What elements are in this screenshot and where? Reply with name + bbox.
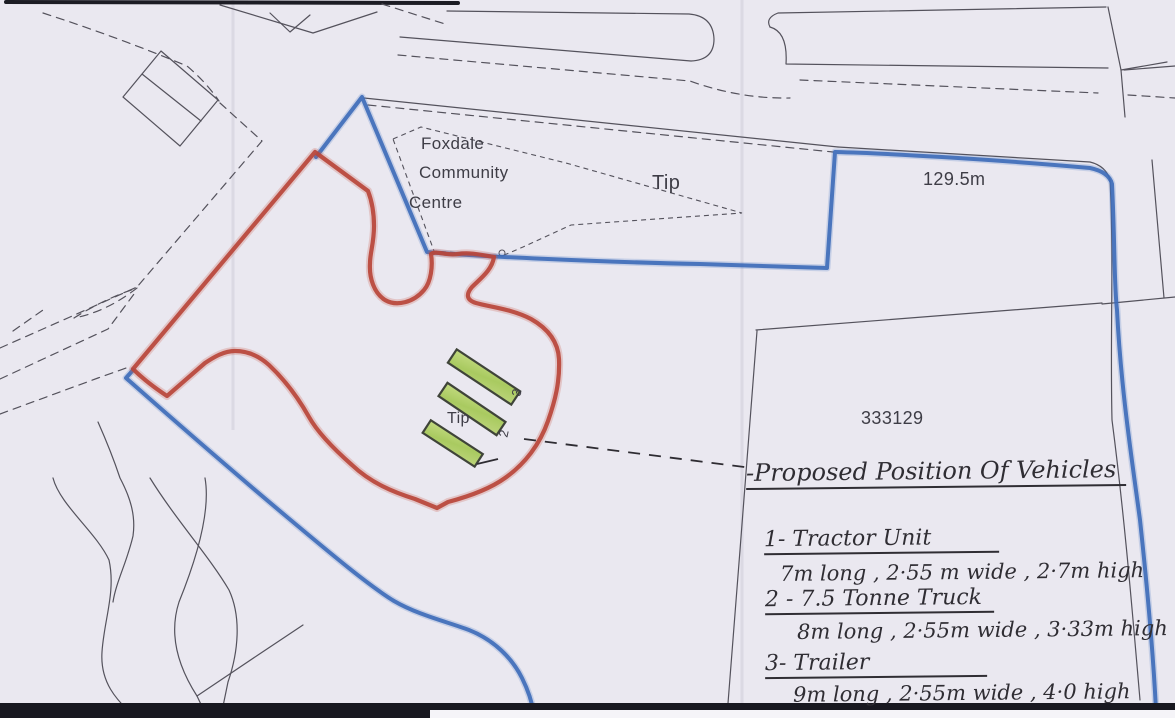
- field-boundary-curve: [197, 625, 303, 696]
- road-dashed: [382, 4, 445, 24]
- road-dashed: [1128, 95, 1175, 98]
- track-outline: [400, 11, 714, 61]
- road-fork-inner-v: [270, 13, 310, 32]
- scanned-site-plan: Foxdale Community Centre Tip 129.5m 3331…: [0, 0, 1175, 718]
- label-tip-site: Tip: [447, 410, 470, 428]
- field-boundary-curve: [175, 478, 207, 717]
- site-boundary-red-halo: [133, 152, 559, 508]
- parcel-line: [1152, 160, 1164, 298]
- field-boundary-curve: [150, 478, 237, 716]
- road-junction-line: [1108, 7, 1121, 70]
- field-boundary-curve: [98, 422, 134, 602]
- road-top-edge: [769, 7, 1106, 27]
- note-item-1-detail: 7m long , 2·55 m wide , 2·7m high: [780, 558, 1144, 586]
- track-outline: [770, 27, 1108, 68]
- parcel-333129-top-edge: [756, 303, 1102, 330]
- label-community-centre-line3: Centre: [409, 193, 462, 213]
- label-community-centre-line1: Foxdale: [421, 134, 484, 154]
- road-fork-line: [220, 5, 377, 33]
- note-item-2-detail: 8m long , 2·55m wide , 3·33m high: [797, 616, 1168, 644]
- scan-top-edge: [6, 2, 458, 3]
- note-item-3-detail: 9m long , 2·55m wide , 4·0 high: [793, 679, 1131, 707]
- traffic-island-outline: [74, 288, 137, 318]
- label-distance-129-5m: 129.5m: [923, 169, 985, 190]
- road-dashed: [137, 103, 262, 287]
- notes-title: -Proposed Position Of Vehicles: [746, 455, 1127, 490]
- label-community-centre-line2: Community: [419, 163, 509, 183]
- leader-line-dashed: [524, 439, 752, 468]
- road-junction-line: [1121, 70, 1125, 117]
- site-plan-drawing: [0, 0, 1175, 718]
- road-dashed: [0, 290, 137, 379]
- road-dashed: [800, 80, 1098, 93]
- scan-bottom-margin: [430, 710, 1175, 718]
- ownership-boundary-blue-southwest: [126, 370, 534, 714]
- scan-bottom-bar: [0, 710, 430, 718]
- road-dashed: [398, 55, 790, 98]
- field-boundary-curve: [53, 478, 135, 717]
- label-tip-area: Tip: [652, 172, 680, 195]
- building-outline: [123, 51, 218, 146]
- label-parcel-333129: 333129: [861, 408, 923, 429]
- road-dashed: [0, 367, 129, 414]
- note-item-1-heading: 1- Tractor Unit: [764, 525, 1000, 555]
- note-item-3-heading: 3- Trailer: [765, 649, 988, 679]
- road-dashed: [13, 310, 43, 331]
- note-item-2-heading: 2 - 7.5 Tonne Truck: [765, 585, 994, 615]
- building-divider: [142, 74, 201, 121]
- ownership-boundary-blue-halo: [126, 370, 534, 714]
